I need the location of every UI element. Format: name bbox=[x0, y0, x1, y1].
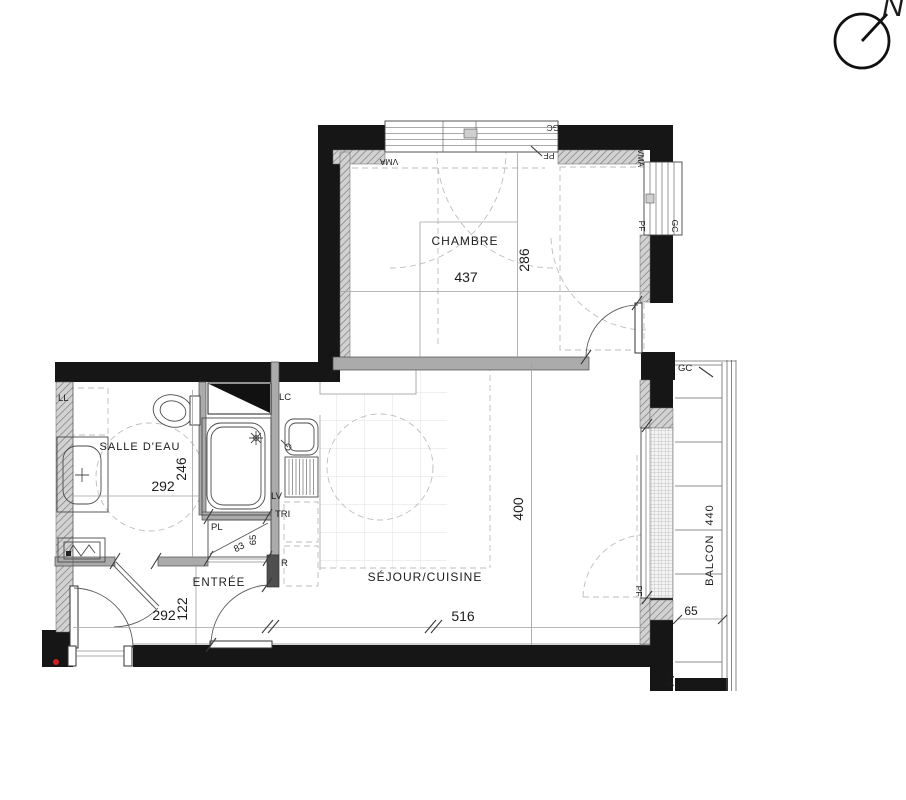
tag-placard: PL bbox=[211, 522, 223, 533]
room-label-entree: ENTRÉE bbox=[193, 576, 246, 589]
tag-duct: LC bbox=[279, 392, 291, 403]
floor-plan-page: CHAMBRE 437 286 SALLE D'EAU 292 246 ENTR… bbox=[0, 0, 906, 800]
tag-top-window-pf: PF bbox=[544, 151, 555, 161]
tag-fridge: R bbox=[281, 558, 288, 569]
kitchen-fixtures bbox=[281, 419, 318, 497]
dimension-break-marks bbox=[262, 620, 442, 633]
red-marker-dot bbox=[53, 659, 59, 665]
balcony-sliding-bay bbox=[641, 428, 673, 598]
tag-top-window-gc: GC bbox=[547, 123, 560, 133]
balcony-door-swing-arc bbox=[583, 535, 641, 597]
window-handle bbox=[646, 194, 654, 203]
faucet-cross-icon bbox=[75, 468, 89, 482]
bedroom-door-leaf bbox=[635, 303, 642, 353]
tag-washer: LL bbox=[58, 393, 69, 404]
tag-wall-mark: C bbox=[330, 369, 337, 380]
bedroom-door-arc bbox=[586, 305, 638, 357]
window-swing-arc-left bbox=[390, 152, 506, 268]
dim-salle-deau-depth: 246 bbox=[173, 457, 189, 481]
tag-pv: PV bbox=[666, 673, 677, 686]
kitchen-tiled-floor bbox=[320, 368, 447, 570]
window-swing-arc-right bbox=[437, 152, 553, 268]
dim-balcon-depth: 65 bbox=[684, 604, 698, 618]
shower-head-icon bbox=[249, 431, 263, 445]
tag-right-window-pf: PF bbox=[637, 221, 647, 232]
dim-sejour-depth: 400 bbox=[510, 497, 526, 521]
living-room-door-leaf bbox=[210, 641, 272, 648]
window-handle bbox=[464, 129, 477, 138]
recycling-zone bbox=[284, 502, 318, 542]
dim-chambre-width: 437 bbox=[454, 269, 478, 285]
dim-sejour-width: 516 bbox=[451, 608, 475, 624]
room-label-salle-deau: SALLE D'EAU bbox=[100, 441, 181, 453]
bathroom-door-leaf bbox=[113, 565, 156, 609]
dim-entree-depth: 122 bbox=[174, 597, 190, 621]
window-swing-zone bbox=[560, 167, 644, 350]
floor-plan: CHAMBRE 437 286 SALLE D'EAU 292 246 ENTR… bbox=[0, 0, 906, 800]
toilet bbox=[150, 391, 197, 432]
living-room-door-arc bbox=[211, 585, 270, 644]
tag-balcony-gc: GC bbox=[678, 363, 692, 374]
north-arrow: N bbox=[835, 0, 904, 68]
fridge-zone bbox=[284, 546, 318, 586]
entrance-door-leaf bbox=[70, 586, 78, 648]
tag-sorting: TRI bbox=[275, 509, 290, 520]
tag-dishwasher: LV bbox=[271, 491, 283, 502]
tag-right-window-vma: VMA bbox=[636, 149, 646, 168]
balcony-privacy-screen bbox=[675, 678, 728, 691]
dim-entree-width: 292 bbox=[152, 607, 176, 623]
closet-diag-dim-a: 83 bbox=[232, 540, 247, 555]
room-label-balcon: BALCON440 bbox=[704, 504, 716, 586]
side-window-swing-arc bbox=[551, 235, 646, 330]
drainer bbox=[285, 457, 318, 497]
entrance-door-arc bbox=[74, 588, 133, 648]
toilet-tank bbox=[190, 396, 200, 425]
dim-salle-deau-width: 292 bbox=[151, 478, 175, 494]
closet-diag-dim-b: 65 bbox=[248, 535, 259, 546]
dim-chambre-depth: 286 bbox=[516, 248, 532, 272]
room-label-sejour: SÉJOUR/CUISINE bbox=[368, 569, 483, 584]
tag-right-window-gc: GC bbox=[670, 220, 680, 233]
room-label-chambre: CHAMBRE bbox=[431, 234, 498, 248]
tag-balcony-door-pf: PF bbox=[634, 586, 644, 597]
tag-top-window-vma: VMA bbox=[379, 157, 398, 167]
compass-north-label: N bbox=[882, 0, 904, 23]
